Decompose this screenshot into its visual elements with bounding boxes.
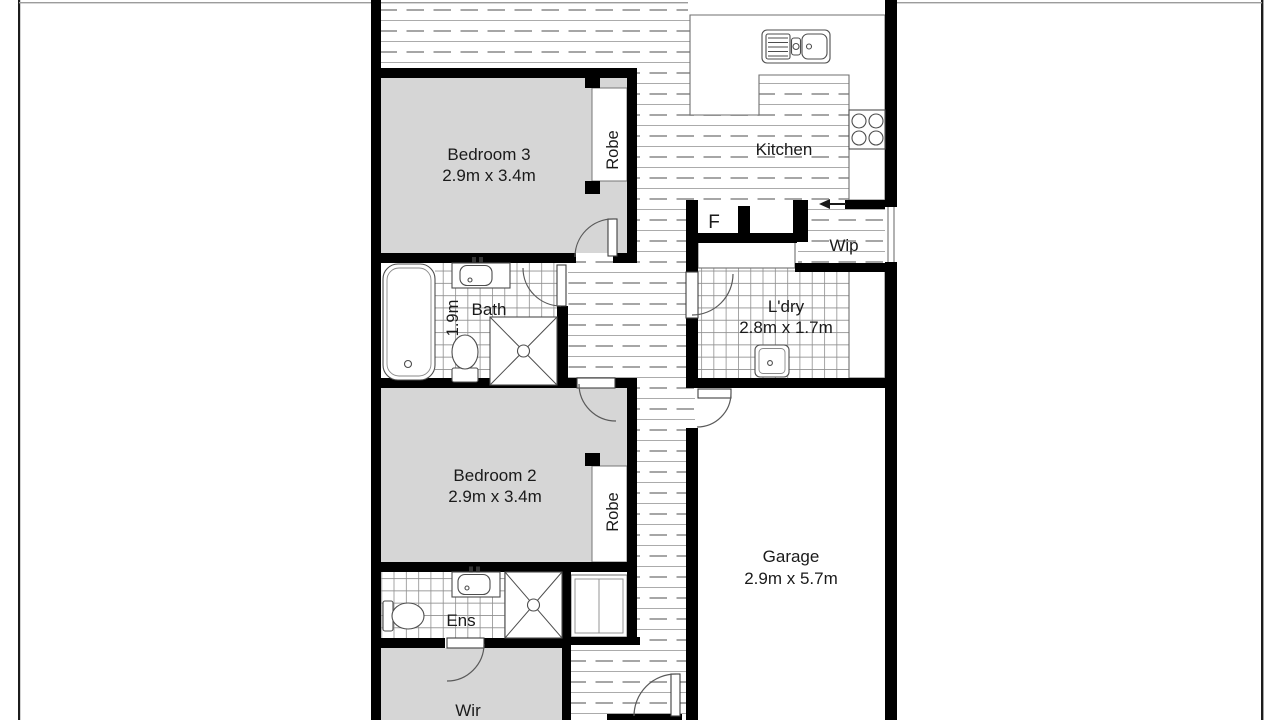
bath-toilet bbox=[452, 335, 478, 382]
ens-label: Ens bbox=[446, 611, 475, 630]
bedroom2-dims: 2.9m x 3.4m bbox=[448, 487, 542, 506]
garage-dims: 2.9m x 5.7m bbox=[744, 569, 838, 588]
wir-label: Wir bbox=[455, 701, 481, 720]
bedroom3-label: Bedroom 3 bbox=[447, 145, 530, 164]
cooktop bbox=[849, 110, 885, 149]
bath-label: Bath bbox=[472, 300, 507, 319]
floor-plan: Bedroom 3 2.9m x 3.4m Robe Kitchen F Wip… bbox=[0, 0, 1280, 720]
fridge-label: F bbox=[708, 212, 720, 233]
bath-shower bbox=[490, 317, 557, 385]
floor-plan-page: Bedroom 3 2.9m x 3.4m Robe Kitchen F Wip… bbox=[0, 0, 1280, 720]
kitchen-sink bbox=[762, 30, 830, 63]
page-border-left bbox=[18, 0, 20, 720]
ens-shower bbox=[505, 572, 562, 638]
page-border-right bbox=[1261, 0, 1263, 720]
bedroom2-label: Bedroom 2 bbox=[453, 466, 536, 485]
wip-floorboards bbox=[798, 202, 885, 266]
laundry-tub bbox=[755, 345, 789, 377]
fridge-bench bbox=[698, 242, 795, 268]
linen-cupboard bbox=[571, 575, 627, 637]
bath-dim: 1.9m bbox=[444, 300, 462, 337]
bedroom3-dims: 2.9m x 3.4m bbox=[442, 166, 536, 185]
robe3-label: Robe bbox=[604, 130, 622, 169]
wip-label: Wip bbox=[829, 236, 858, 255]
laundry-dims: 2.8m x 1.7m bbox=[739, 318, 833, 337]
page-border-top bbox=[19, 2, 1262, 3]
garage-label: Garage bbox=[763, 547, 820, 566]
bathtub bbox=[383, 264, 435, 380]
robe2-label: Robe bbox=[604, 492, 622, 531]
kitchen-label: Kitchen bbox=[756, 140, 813, 159]
laundry-label: L'dry bbox=[768, 297, 805, 316]
laundry-bench bbox=[849, 268, 885, 378]
wip-window bbox=[885, 207, 897, 262]
ens-toilet bbox=[383, 601, 424, 631]
